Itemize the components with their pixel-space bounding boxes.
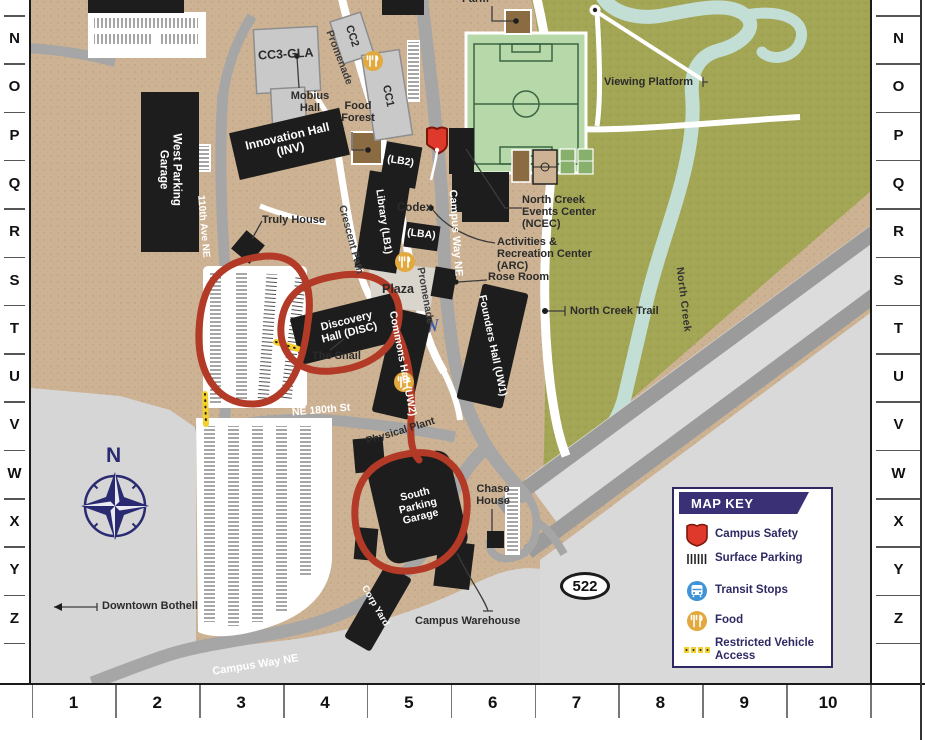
restricted-vehicle-icon [684, 645, 710, 655]
grid-row-label: W [872, 450, 925, 498]
grid-separator [876, 208, 921, 210]
grid-separator [876, 595, 921, 597]
grid-tick [870, 685, 872, 718]
grid-tick [618, 685, 620, 718]
grid-tick [199, 685, 201, 718]
grid-row-label: T [872, 305, 925, 353]
grid-row-label: Y [0, 546, 29, 594]
grid-separator [4, 401, 25, 403]
grid-separator [4, 305, 25, 307]
grid-row-label: P [0, 112, 29, 160]
key-label: Food [715, 614, 827, 627]
grid-tick [115, 685, 117, 718]
grid-separator [876, 15, 921, 17]
grid-row-label: W [0, 450, 29, 498]
grid-row-label: T [0, 305, 29, 353]
grid-row-label: Q [872, 160, 925, 208]
grid-separator [876, 353, 921, 355]
food-forest-label: Food Forest [334, 100, 382, 124]
grid-separator [876, 643, 921, 645]
grid-tick [702, 685, 704, 718]
grid-row-label: V [872, 401, 925, 449]
grid-separator [4, 353, 25, 355]
grid-row-label: Z [0, 595, 29, 643]
plaza-label: Plaza [382, 283, 414, 297]
grid-row-label: P [872, 112, 925, 160]
grid-row-label: M [0, 0, 29, 15]
campus-map: W [0, 0, 925, 740]
grid-separator [4, 112, 25, 114]
grid-band-left: MNOPQRSTUVWXYZ [0, 0, 31, 740]
key-label: Surface Parking [715, 552, 827, 565]
grid-col-label: 1 [69, 693, 78, 713]
cc3-gla-label: CC3-GLA [258, 47, 314, 64]
grid-separator [4, 257, 25, 259]
grid-row-label: M [872, 0, 925, 15]
grid-row-label: Y [872, 546, 925, 594]
grid-col-label: 7 [572, 693, 581, 713]
key-item-transit-stops: Transit Stops [684, 580, 827, 602]
downtown-bothell-label: Downtown Bothell [102, 600, 198, 612]
grid-tick [535, 685, 537, 718]
grid-separator [876, 63, 921, 65]
grid-separator [876, 305, 921, 307]
grid-separator [876, 160, 921, 162]
grid-separator [4, 546, 25, 548]
campus-safety-icon [684, 523, 710, 547]
grid-row-label: Q [0, 160, 29, 208]
compass-rose: N [70, 444, 162, 549]
grid-row-label: X [872, 498, 925, 546]
grid-separator [4, 63, 25, 65]
grid-col-label: 10 [819, 693, 838, 713]
grid-band-right: MNOPQRSTUVWXYZ [870, 0, 925, 740]
grid-separator [4, 595, 25, 597]
grid-separator [4, 450, 25, 452]
key-item-food: Food [684, 610, 827, 632]
viewing-platform-label: Viewing Platform [604, 76, 693, 88]
key-label: Transit Stops [715, 584, 827, 597]
grid-row-label: S [0, 257, 29, 305]
grid-separator [4, 208, 25, 210]
grid-tick [451, 685, 453, 718]
food-icon [684, 610, 710, 632]
grid-row-label: R [0, 208, 29, 256]
map-key-title: MAP KEY [679, 496, 754, 511]
grid-outer-border [920, 0, 922, 740]
grid-separator [876, 450, 921, 452]
grid-tick [283, 685, 285, 718]
grid-col-label: 5 [404, 693, 413, 713]
grid-separator [4, 643, 25, 645]
key-label: Campus Safety [715, 528, 827, 541]
grid-separator [4, 498, 25, 500]
highway-522-shield: 522 [560, 572, 610, 600]
grid-col-label: 3 [236, 693, 245, 713]
surface-parking-icon [684, 552, 710, 566]
grid-separator [876, 498, 921, 500]
grid-row-label: O [0, 63, 29, 111]
grid-col-label: 9 [739, 693, 748, 713]
mobius-hall-label: Mobius Hall [284, 90, 336, 114]
grid-row-label: S [872, 257, 925, 305]
grid-row-label: N [872, 15, 925, 63]
grid-row-label: X [0, 498, 29, 546]
north-creek-trail-label: North Creek Trail [570, 305, 659, 317]
grid-row-label: V [0, 401, 29, 449]
key-item-surface-parking: Surface Parking [684, 552, 827, 566]
key-item-campus-safety: Campus Safety [684, 523, 827, 547]
grid-tick [32, 685, 34, 718]
compass-north-label: N [106, 444, 121, 467]
grid-tick [786, 685, 788, 718]
campus-warehouse-label: Campus Warehouse [415, 615, 520, 627]
chase-house-label: Chase House [468, 483, 518, 507]
ncec-label: North Creek Events Center (NCEC) [522, 194, 622, 230]
grid-row-label: U [872, 353, 925, 401]
grid-band-bottom: 12345678910 [0, 683, 925, 740]
codex-label: Codex [397, 202, 432, 215]
grid-col-label: 4 [320, 693, 329, 713]
the-snail-label: The Snail [312, 350, 361, 362]
truly-house-label: Truly House [262, 214, 325, 226]
grid-separator [4, 160, 25, 162]
grid-separator [4, 15, 25, 17]
grid-separator [876, 401, 921, 403]
arc-label: Activities & Recreation Center (ARC) [497, 236, 609, 272]
grid-row-label: U [0, 353, 29, 401]
map-key-header: MAP KEY [679, 492, 809, 514]
key-label: Restricted Vehicle Access [715, 637, 827, 663]
grid-separator [876, 546, 921, 548]
grid-col-label: 8 [656, 693, 665, 713]
grid-row-label: Z [872, 595, 925, 643]
map-key-panel: MAP KEY Campus Safety Surface Parking Tr… [672, 487, 833, 668]
transit-stops-icon [684, 580, 710, 602]
grid-row-label: O [872, 63, 925, 111]
grid-separator [876, 112, 921, 114]
key-item-restricted-vehicle: Restricted Vehicle Access [684, 637, 827, 663]
rose-room-label: Rose Room [488, 271, 549, 283]
grid-row-label: N [0, 15, 29, 63]
grid-separator [876, 257, 921, 259]
grid-tick [367, 685, 369, 718]
grid-col-label: 6 [488, 693, 497, 713]
west-parking-garage-label: West Parking Garage [157, 130, 182, 210]
farm-label: Farm [462, 0, 489, 5]
grid-row-label: R [872, 208, 925, 256]
grid-col-label: 2 [153, 693, 162, 713]
